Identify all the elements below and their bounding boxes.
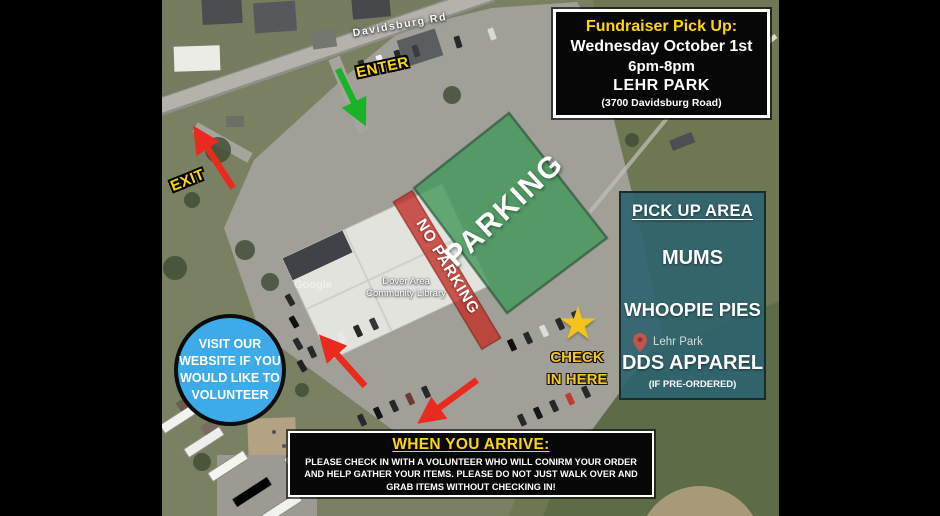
- lehr-park-pin-label: Lehr Park: [653, 336, 703, 348]
- lehr-park-pin-row: Lehr Park: [621, 333, 764, 351]
- check-in-star-icon: ★: [553, 300, 603, 346]
- library-place-label: Dover Area Community Library: [352, 276, 460, 300]
- event-time: 6pm-8pm: [628, 58, 695, 75]
- event-location: LEHR PARK: [613, 77, 710, 95]
- volunteer-circle-badge: VISIT OUR WEBSITE IF YOU WOULD LIKE TO V…: [174, 314, 286, 426]
- flyer-canvas: Davidsburg Rd ENTER EXIT PARKING NO PARK…: [0, 0, 940, 516]
- event-title: Fundraiser Pick Up:: [586, 18, 737, 36]
- pickup-item-note: (IF PRE-ORDERED): [621, 379, 764, 390]
- check-in-label: CHECK IN HERE: [528, 347, 626, 391]
- event-date: Wednesday October 1st: [571, 38, 753, 56]
- pickup-heading: PICK UP AREA: [621, 202, 764, 221]
- event-address: (3700 Davidsburg Road): [601, 97, 721, 109]
- arrival-heading: WHEN YOU ARRIVE:: [296, 436, 646, 454]
- pickup-item-dds-apparel: DDS APPAREL: [621, 352, 764, 375]
- arrival-body: PLEASE CHECK IN WITH A VOLUNTEER WHO WIL…: [296, 456, 646, 493]
- arrival-instructions-box: WHEN YOU ARRIVE: PLEASE CHECK IN WITH A …: [288, 431, 654, 497]
- pickup-item-whoopie-pies: WHOOPIE PIES: [621, 299, 764, 321]
- map-pin-icon: [633, 333, 647, 352]
- pickup-area-panel: PICK UP AREA MUMS WHOOPIE PIES Lehr Park…: [619, 191, 766, 400]
- pickup-item-mums: MUMS: [621, 247, 764, 270]
- event-info-box: Fundraiser Pick Up: Wednesday October 1s…: [553, 9, 770, 118]
- google-watermark: Google: [294, 279, 332, 291]
